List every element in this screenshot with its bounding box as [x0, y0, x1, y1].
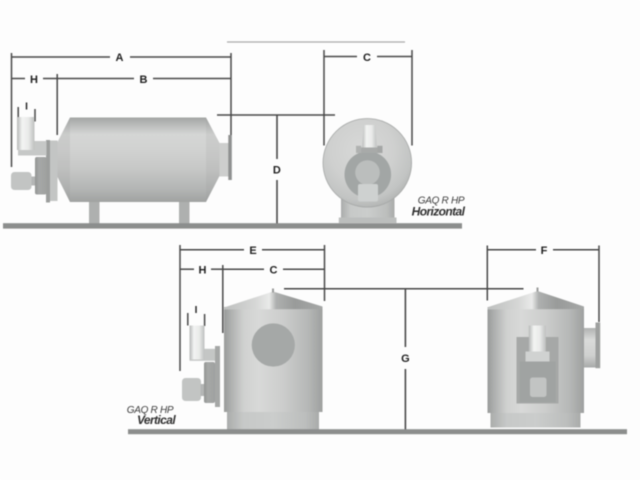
svg-text:E: E: [249, 245, 256, 257]
svg-text:D: D: [273, 164, 281, 176]
svg-text:Vertical: Vertical: [137, 413, 176, 427]
svg-text:I: I: [25, 102, 28, 113]
svg-text:A: A: [116, 52, 124, 64]
svg-text:I: I: [195, 305, 198, 316]
svg-text:G: G: [401, 353, 410, 365]
svg-text:B: B: [140, 74, 148, 86]
svg-text:C: C: [363, 52, 371, 64]
svg-text:F: F: [541, 245, 548, 257]
svg-text:C: C: [270, 265, 278, 277]
svg-text:H: H: [30, 74, 38, 86]
svg-text:H: H: [199, 265, 207, 277]
svg-text:Horizontal: Horizontal: [412, 205, 466, 219]
